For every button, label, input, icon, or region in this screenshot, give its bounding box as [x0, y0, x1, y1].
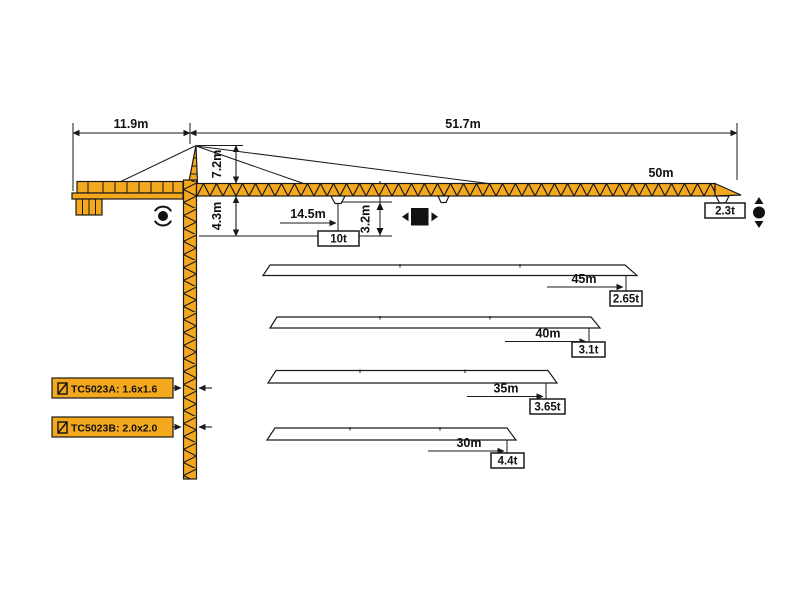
- trolley-travel-icon: [402, 208, 438, 226]
- hook-path-label: 3.2m: [359, 205, 373, 234]
- main-jib-length-label: 50m: [648, 166, 673, 180]
- diagram-canvas: 11.9m 51.7m 7.2m 4.3m 3.2m 14.5m 10t: [0, 0, 800, 600]
- counter-jib-radius-label: 11.9m: [114, 117, 149, 131]
- length-label-40m: 40m: [535, 327, 560, 341]
- tip-capacity-label: 2.3t: [715, 206, 735, 218]
- max-capacity-label: 10t: [330, 234, 347, 246]
- capacity-label-30m: 4.4t: [498, 456, 518, 468]
- jib-variant-45m: 45m 2.65t: [263, 264, 642, 306]
- jib-underside-label: 4.3m: [210, 202, 224, 231]
- trolley-hook-mid: [438, 196, 449, 203]
- model-a-label: TC5023A: 1.6x1.6: [71, 384, 158, 396]
- tower-head-spike: [189, 145, 198, 184]
- main-jib-tip: [715, 184, 741, 197]
- length-label-35m: 35m: [493, 382, 518, 396]
- jib-variant-30m: 30m 4.4t: [267, 427, 524, 468]
- jib-variant-40m: 40m 3.1t: [270, 316, 605, 357]
- model-b-label: TC5023B: 2.0x2.0: [71, 423, 158, 435]
- main-jib: 50m: [197, 166, 742, 204]
- tower-head-height-label: 7.2m: [210, 150, 224, 179]
- jib-variant-35m: 35m 3.65t: [268, 370, 565, 415]
- counter-jib-girder: [77, 182, 183, 194]
- tip-capacity: 2.3t: [705, 203, 745, 218]
- tower-mast: [184, 180, 197, 479]
- slewing-icon: [155, 207, 171, 226]
- up-arrowhead: [377, 203, 384, 211]
- tower-crane-load-diagram: 11.9m 51.7m 7.2m 4.3m 3.2m 14.5m 10t: [0, 0, 800, 600]
- front-pendant-rope-2: [196, 146, 500, 185]
- trolley-hook-tip: [716, 196, 729, 203]
- counter-jib-platform: [72, 193, 183, 199]
- down-arrowhead: [377, 228, 384, 236]
- top-dimensions: 11.9m 51.7m: [73, 117, 737, 191]
- capacity-label-40m: 3.1t: [579, 345, 599, 357]
- length-label-30m: 30m: [456, 436, 481, 450]
- min-radius-dimension: 14.5m 10t: [280, 203, 359, 246]
- length-label-45m: 45m: [571, 272, 596, 286]
- main-jib-lattice: [197, 184, 716, 197]
- capacity-label-35m: 3.65t: [534, 402, 560, 414]
- counter-jib: [72, 182, 183, 216]
- working-radius-label: 51.7m: [445, 117, 480, 131]
- tower-head-height-dimension: 7.2m: [197, 146, 243, 184]
- capacity-label-45m: 2.65t: [613, 294, 639, 306]
- min-radius-label: 14.5m: [290, 207, 325, 221]
- hoist-icon: [753, 197, 765, 228]
